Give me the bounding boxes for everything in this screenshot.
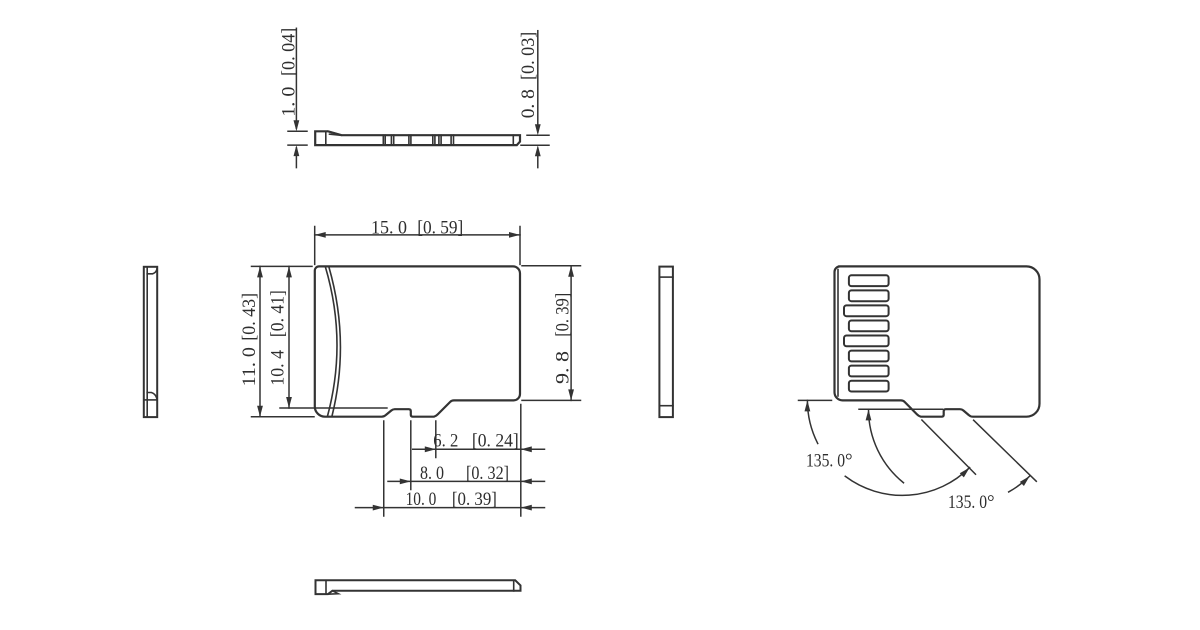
svg-text:10. 0[0. 39]: 10. 0[0. 39] bbox=[406, 489, 497, 510]
svg-text:15. 0[0. 59]: 15. 0[0. 59] bbox=[371, 217, 463, 238]
svg-text:6. 2[0. 24]: 6. 2[0. 24] bbox=[433, 431, 519, 452]
svg-text:135. 0°: 135. 0° bbox=[948, 492, 995, 513]
svg-text:1. 0[0. 04]: 1. 0[0. 04] bbox=[278, 28, 299, 117]
svg-text:10. 4[0. 41]: 10. 4[0. 41] bbox=[268, 290, 289, 386]
svg-text:11. 0[0. 43]: 11. 0[0. 43] bbox=[239, 293, 260, 387]
svg-text:0. 8[0. 03]: 0. 8[0. 03] bbox=[518, 32, 539, 119]
svg-text:135. 0°: 135. 0° bbox=[806, 451, 853, 472]
